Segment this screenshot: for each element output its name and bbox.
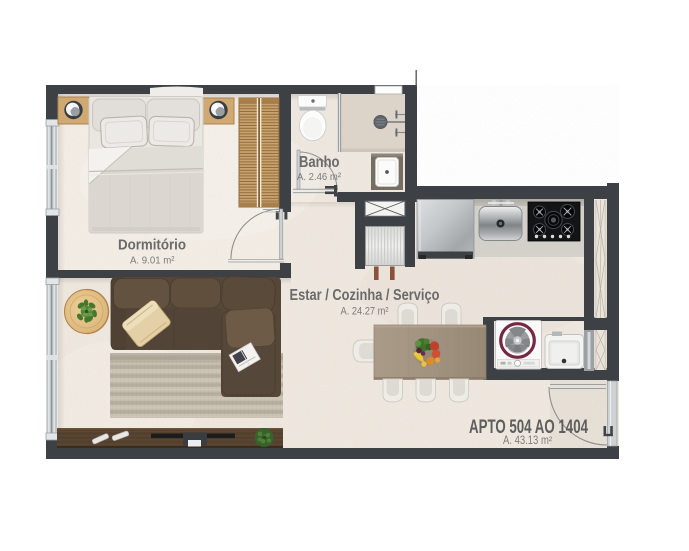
svg-text:A. 2.46 m²: A. 2.46 m² [297,171,341,183]
svg-text:A. 43.13 m²: A. 43.13 m² [503,435,552,447]
svg-text:A. 24.27 m²: A. 24.27 m² [341,306,389,318]
svg-text:Banho: Banho [299,154,340,171]
svg-text:A. 9.01 m²: A. 9.01 m² [130,255,175,267]
svg-text:Estar / Cozinha / Serviço: Estar / Cozinha / Serviço [290,287,440,304]
svg-text:Dormitório: Dormitório [118,237,186,254]
